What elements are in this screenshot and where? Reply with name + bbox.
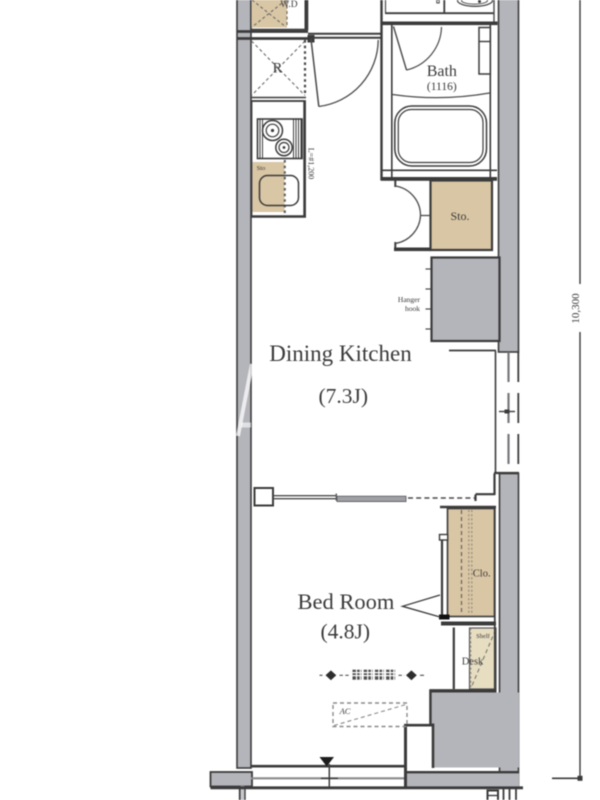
- svg-text:Desk: Desk: [462, 657, 484, 668]
- svg-text:L=#1,200: L=#1,200: [307, 148, 316, 179]
- svg-text:hook: hook: [405, 304, 420, 313]
- svg-text:(4.8J): (4.8J): [321, 620, 371, 644]
- svg-text:Bath: Bath: [427, 63, 457, 80]
- svg-text:Shelf: Shelf: [476, 633, 491, 640]
- svg-text:AC: AC: [339, 706, 351, 716]
- svg-text:Dining Kitchen: Dining Kitchen: [269, 341, 412, 366]
- svg-text:R: R: [273, 61, 283, 77]
- svg-text:Bed Room: Bed Room: [297, 589, 394, 614]
- svg-text:Clo.: Clo.: [473, 569, 491, 580]
- svg-text:(1116): (1116): [427, 81, 457, 93]
- svg-text:(7.3J): (7.3J): [319, 384, 369, 408]
- svg-text:Sto: Sto: [257, 165, 266, 172]
- svg-text:Hanger: Hanger: [398, 295, 421, 304]
- svg-text:W.D: W.D: [280, 0, 297, 10]
- svg-text:10,300: 10,300: [570, 293, 582, 324]
- svg-text:Sto.: Sto.: [450, 209, 469, 223]
